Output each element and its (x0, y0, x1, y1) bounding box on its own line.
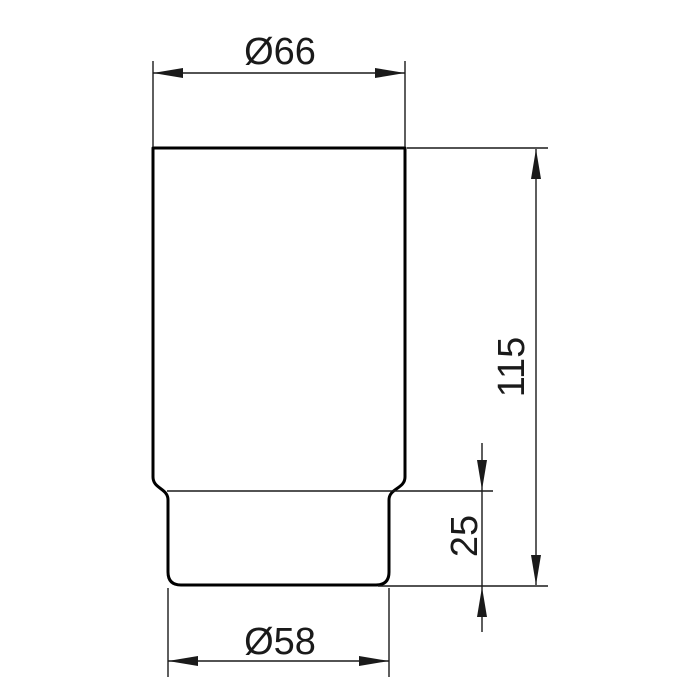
tumbler-dimension-drawing: Ø66 115 25 Ø58 (0, 0, 700, 700)
top-diameter-arrowhead-right (375, 68, 405, 78)
total-height-arrowhead-bottom (531, 555, 541, 585)
base-height-arrowhead-bottom (477, 587, 487, 617)
tumbler-outline (153, 148, 405, 585)
total-height-arrowhead-top (531, 149, 541, 179)
top-diameter-label: Ø66 (244, 31, 316, 73)
base-height-label: 25 (444, 515, 486, 557)
base-diameter-label: Ø58 (244, 621, 316, 663)
total-height-label: 115 (491, 337, 533, 398)
base-height-arrowhead-top (477, 460, 487, 490)
base-diameter-arrowhead-right (359, 656, 389, 666)
technical-drawing-canvas: Ø66 115 25 Ø58 (0, 0, 700, 700)
top-diameter-arrowhead-left (153, 68, 183, 78)
base-diameter-arrowhead-left (168, 656, 198, 666)
